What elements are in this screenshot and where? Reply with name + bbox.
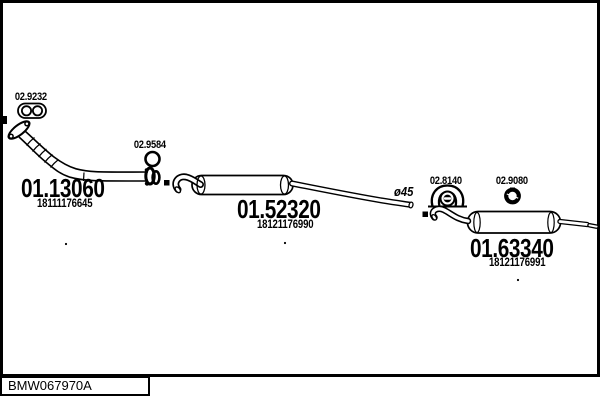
- joint-marker-square-2: [423, 212, 429, 218]
- joint-marker-square-1: [164, 180, 170, 186]
- drawing-number-plate: BMW067970A: [0, 376, 150, 396]
- rear-muffler-icon: [431, 209, 597, 233]
- exhaust-system-diagram: 02.9232 02.9584 01.13060 18111176645 01.…: [0, 0, 600, 400]
- rear-muffler-oem: 18121176991: [489, 256, 545, 268]
- front-pipe-oem: 18111176645: [37, 197, 92, 209]
- drawing-number: BMW067970A: [8, 378, 92, 393]
- pipe-diameter-note: ø45: [394, 186, 413, 199]
- rubber-mount-label: 02.8140: [416, 176, 476, 187]
- reference-dots: [65, 242, 519, 281]
- clamp-icon: [145, 152, 160, 186]
- rubber-mount-icon: [428, 186, 467, 207]
- rubber-ring-icon: [506, 188, 519, 203]
- edge-marker-square: [0, 116, 7, 124]
- clamp-label: 02.9584: [120, 140, 180, 151]
- centre-muffler-oem: 18121176990: [257, 218, 313, 230]
- flange-gasket-icon: [18, 104, 46, 119]
- rubber-ring-label: 02.9080: [482, 176, 542, 187]
- flange-gasket-label: 02.9232: [1, 92, 61, 103]
